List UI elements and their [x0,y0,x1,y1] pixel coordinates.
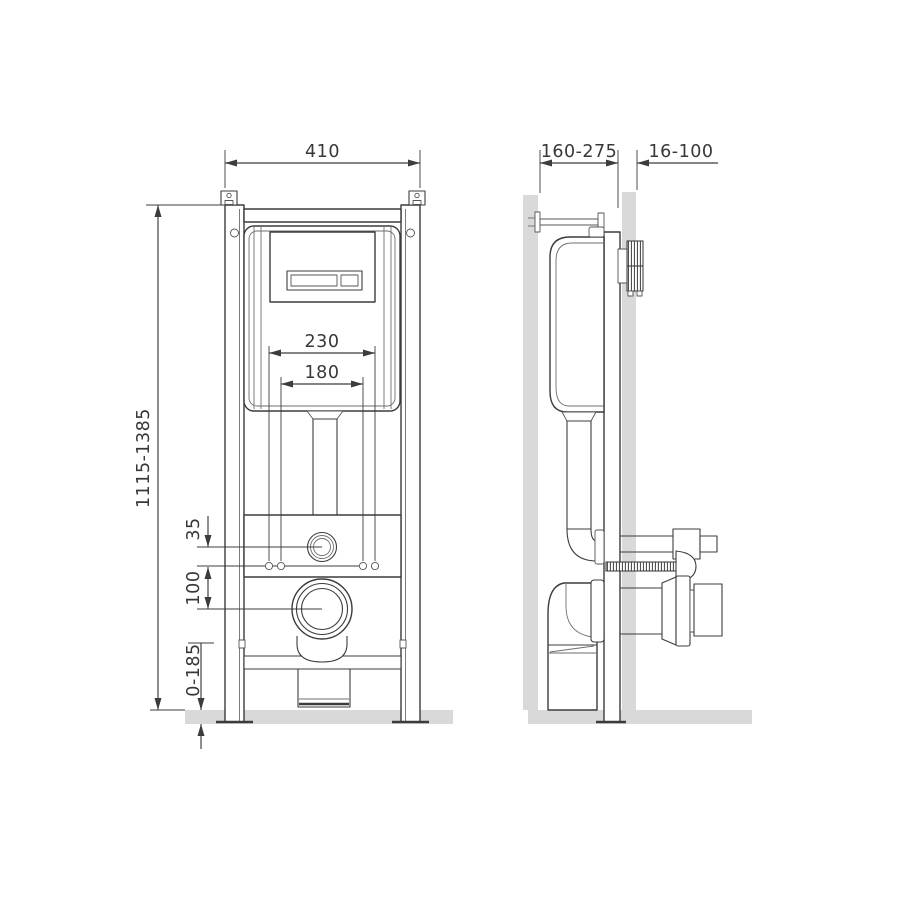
dim-frame-height: 1115-1385 [134,205,223,710]
flush-button-small [341,275,358,286]
wall-bracket-right [409,191,425,205]
drain-bend-housing [297,636,347,662]
floor-surface-side [528,710,752,724]
dim-label-foot-adjustment: 0-185 [184,643,204,696]
dim-label-flush-to-fixings: 35 [184,517,204,540]
dim-label-installation-depth: 160-275 [541,142,618,162]
cistern-inlet-fitting [589,227,604,237]
top-crossbar [244,209,401,222]
dim-label-fixing-inner: 180 [305,363,340,383]
rough-wall-surface [523,195,538,710]
side-view [523,192,752,724]
flushpipe-neck [307,411,343,419]
dim-label-wall-finish-offset: 16-100 [649,142,714,162]
cistern-side-profile [550,237,604,412]
drain-pipe-front [298,669,350,707]
dim-label-fixing-outer: 230 [305,332,340,352]
dim-flush-to-fixings: 35 [184,516,208,547]
dim-label-fixings-to-outlet: 100 [184,571,204,606]
dim-fixings-to-outlet: 100 [184,567,208,609]
dim-frame-width: 410 [225,142,420,188]
rail-latch-right [400,640,406,648]
flushpipe-front [313,419,337,516]
rail-hole-right [407,229,415,237]
water-inlet-connector [618,241,643,296]
dim-label-frame-width: 410 [305,142,340,162]
dim-label-frame-height: 1115-1385 [134,408,154,508]
dim-wall-finish-offset: 16-100 [637,142,718,190]
wall-bracket-left [221,191,237,205]
technical-drawing-page: 410 1115-1385 230 180 35 100 [0,0,900,900]
flush-plate [270,232,375,302]
rail-latch-left [239,640,245,648]
drain-wall-flange [591,580,604,642]
dim-installation-depth: 160-275 [540,142,618,208]
rail-hole-left [231,229,239,237]
flush-button-large [291,275,337,286]
dim-foot-adjustment: 0-185 [184,643,214,749]
flushpipe-side [562,412,604,564]
frame-rail-side [604,232,620,722]
drain-elbow-side [548,580,604,710]
front-view [185,191,453,724]
wc-frame-technical-drawing: 410 1115-1385 230 180 35 100 [0,0,900,900]
